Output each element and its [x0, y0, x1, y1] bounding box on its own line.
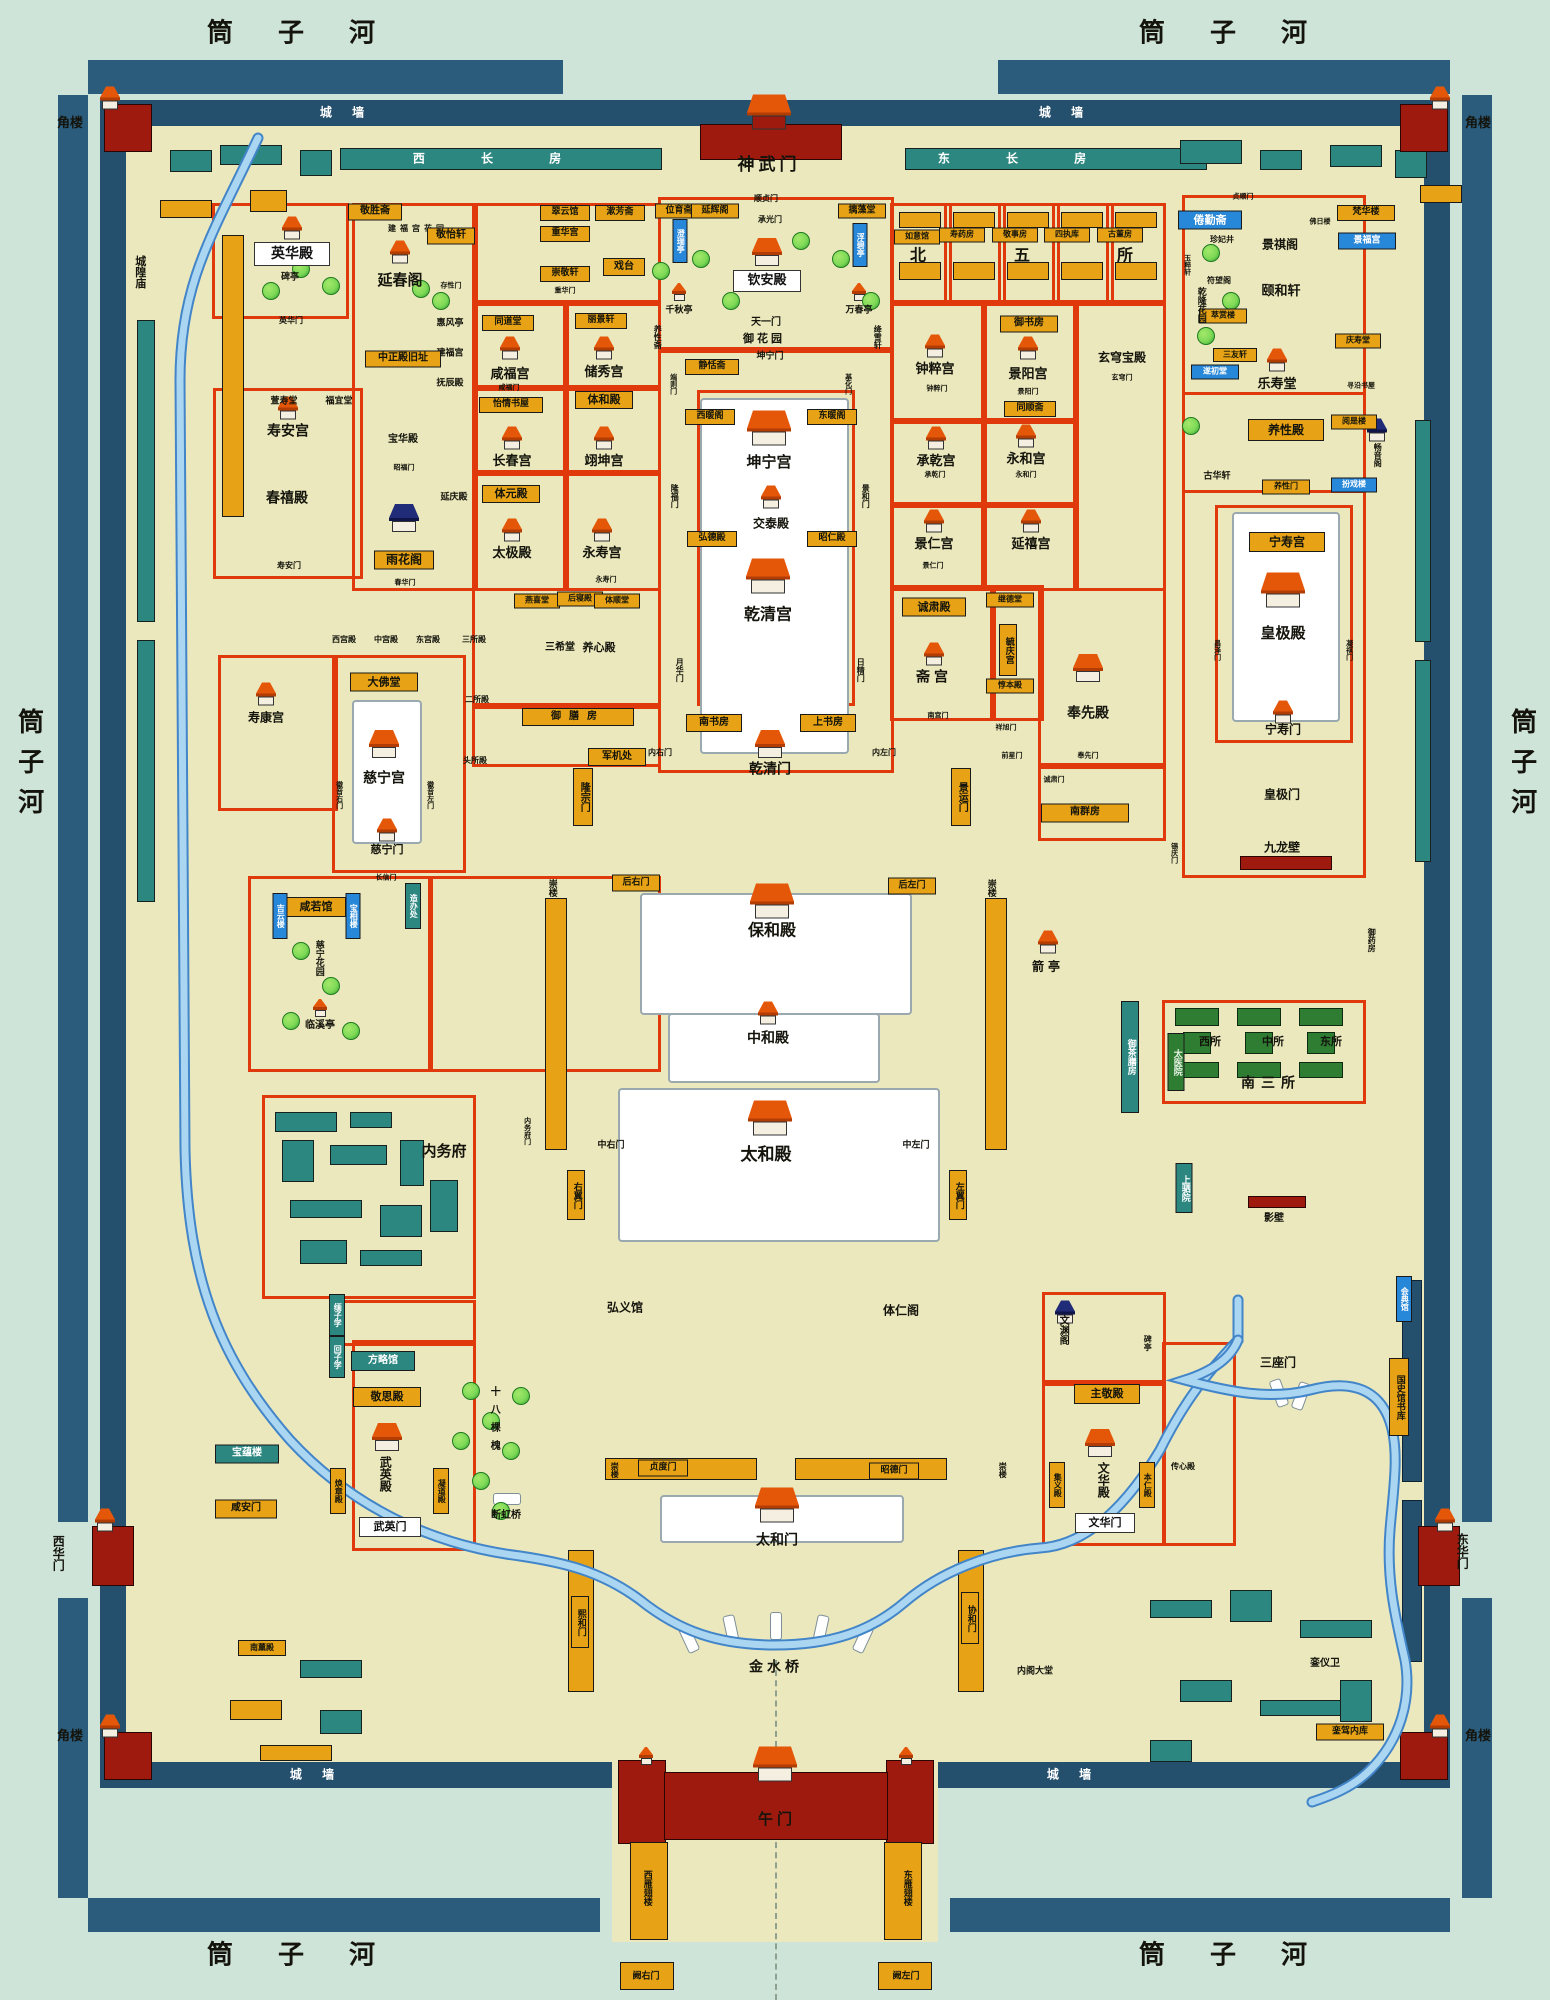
map-label: 东所 — [1320, 1036, 1342, 1048]
map-label: 福宜堂 — [325, 397, 352, 406]
map-label: 影壁 — [1264, 1214, 1284, 1225]
map-label: 咸福宫 — [490, 368, 529, 382]
map-label: 怡情书屋 — [479, 397, 543, 413]
map-label: 隆福门 — [670, 484, 678, 508]
map-label: 重华宫 — [540, 226, 590, 242]
map-label: 养性殿 — [1248, 419, 1324, 441]
map-label: 萱寿堂 — [270, 397, 297, 406]
map-label: 协和门 — [961, 1592, 979, 1644]
map-label: 方略馆 — [351, 1351, 415, 1371]
gate-xihuamen: 西华门 — [52, 1535, 65, 1571]
map-label: 午门 — [758, 1812, 796, 1828]
map-label: 体和殿 — [575, 391, 633, 409]
map-label: 养性门 — [1262, 480, 1310, 495]
map-label: 皇极殿 — [1260, 626, 1305, 642]
map-label: 西宫殿 — [332, 636, 356, 644]
map-label: 月华门 — [675, 658, 683, 682]
map-label: 熙和门 — [571, 1596, 589, 1648]
map-label: 崇楼 — [546, 879, 555, 897]
map-label: 珍妃井 — [1210, 236, 1234, 244]
map-label: 四执库 — [1044, 228, 1090, 243]
map-label: 端则门 — [669, 374, 676, 395]
map-label: 内左门 — [872, 749, 896, 757]
map-label: 翠云馆 — [540, 205, 590, 221]
map-label: 春禧殿 — [266, 492, 308, 507]
moat-label-top-right: 筒 子 河 — [1139, 20, 1325, 47]
wall-label-top-e: 城 墙 — [1039, 107, 1091, 120]
map-label: 锡庆门 — [1170, 843, 1177, 864]
map-label: 承乾宫 — [916, 455, 955, 469]
map-label: 寿安宫 — [267, 425, 309, 440]
map-label: 吉云楼 — [273, 893, 288, 939]
map-label: 临溪亭 — [305, 1021, 335, 1032]
map-label: 畅音阁 — [1373, 443, 1381, 467]
map-label: 昭福门 — [394, 464, 415, 471]
map-label: 抚辰殿 — [436, 379, 463, 388]
map-label: 中和殿 — [747, 1032, 789, 1047]
gate-shenwumen: 神武门 — [738, 157, 801, 175]
map-label: 军机处 — [588, 748, 646, 766]
map-label: 萃赏楼 — [1199, 309, 1247, 324]
map-label: 诚肃殿 — [902, 598, 966, 617]
map-label: 延禧宫 — [1011, 538, 1050, 552]
map-label: 佛日楼 — [1310, 218, 1331, 225]
map-label: 前星门 — [1002, 752, 1023, 759]
map-label: 后左门 — [888, 878, 936, 895]
map-label: 箭亭 — [1032, 961, 1064, 974]
map-label: 头所殿 — [463, 757, 487, 765]
map-label: 钟粹门 — [927, 385, 948, 392]
map-label: 南书房 — [686, 714, 742, 732]
map-label: 三座门 — [1260, 1357, 1296, 1370]
map-label: 景运门 — [951, 768, 971, 826]
map-label: 承光门 — [758, 216, 782, 224]
map-label: 景阳门 — [1018, 388, 1039, 395]
map-label: 惠风亭 — [436, 319, 463, 328]
map-label: 寿康宫 — [248, 712, 284, 725]
map-label: 东宫殿 — [416, 636, 440, 644]
map-label: 坤宁宫 — [746, 455, 791, 471]
map-label: 宁寿门 — [1265, 724, 1301, 737]
map-label: 焕章殿 — [330, 1468, 346, 1514]
map-label: 西暖阁 — [685, 409, 735, 425]
map-label: 春华门 — [395, 579, 416, 586]
map-label: 惇本殿 — [986, 679, 1034, 694]
map-label: 传心殿 — [1171, 1463, 1195, 1471]
map-label: 扮戏楼 — [1331, 478, 1377, 493]
map-label: 体仁阁 — [883, 1305, 919, 1318]
map-label: 东雁翅楼 — [901, 1870, 910, 1906]
map-label: 斋宫 — [916, 671, 952, 686]
map-label: 澄瑞亭 — [673, 219, 688, 263]
map-label: 英华门 — [279, 317, 303, 325]
map-label: 养心殿 — [583, 642, 616, 654]
map-label: 崇楼 — [998, 1462, 1006, 1478]
map-label: 英华殿 — [254, 242, 330, 266]
map-label: 体元殿 — [482, 485, 540, 503]
corner-tower-sw: 角楼 — [57, 1730, 83, 1744]
map-label: 万春亭 — [845, 306, 872, 315]
map-label: 断虹桥 — [491, 1511, 521, 1522]
map-label: 五 — [1014, 248, 1030, 265]
map-label: 右翼门 — [567, 1170, 585, 1220]
map-label: 景福宫 — [1338, 233, 1396, 250]
map-label: 御茶膳房 — [1121, 1001, 1139, 1113]
map-label: 太和门 — [756, 1534, 798, 1549]
map-label: 太和殿 — [741, 1147, 792, 1165]
map-label: 摛藻堂 — [838, 204, 886, 219]
map-label: 乐寿堂 — [1257, 378, 1296, 392]
map-label: 景阳宫 — [1008, 368, 1047, 382]
map-label: 集义殿 — [1049, 1462, 1065, 1508]
corner-tower-se: 角楼 — [1465, 1730, 1491, 1744]
map-label: 符望阁 — [1207, 277, 1231, 285]
map-label: 延庆殿 — [440, 493, 467, 502]
map-label: 慈宁花园 — [313, 940, 322, 976]
map-label: 奉先殿 — [1067, 707, 1109, 722]
map-label: 中宫殿 — [374, 636, 398, 644]
map-label: 中所 — [1262, 1036, 1284, 1048]
map-label: 千秋亭 — [665, 306, 692, 315]
map-label: 崇楼 — [985, 879, 994, 897]
map-label: 贞度门 — [638, 1460, 688, 1477]
map-label: 延春阁 — [377, 273, 422, 289]
map-label: 景祺阁 — [1262, 239, 1298, 252]
map-label: 永和门 — [1016, 471, 1037, 478]
changfang-east: 东 长 房 — [938, 153, 1112, 166]
map-label: 左翼门 — [949, 1170, 967, 1220]
map-label: 咸安门 — [215, 1500, 277, 1519]
map-label: 碑亭 — [1143, 1335, 1151, 1351]
map-label: 漱芳斋 — [595, 205, 645, 221]
map-label: 慈宁宫 — [363, 772, 405, 787]
map-label: 敬胜斋 — [348, 204, 402, 221]
map-label: 宝华殿 — [388, 435, 418, 446]
map-label: 永和宫 — [1006, 453, 1045, 467]
map-label: 阙左门 — [892, 1972, 919, 1981]
map-label: 二所殿 — [465, 696, 489, 704]
map-label: 徽音右门 — [335, 781, 342, 809]
map-label: 南宫门 — [928, 712, 949, 719]
map-label: 奉先门 — [1078, 752, 1099, 759]
map-label: 养性斋 — [653, 325, 661, 349]
map-label: 回子学 — [329, 1336, 345, 1378]
map-label: 戏台 — [603, 258, 645, 276]
map-label: 文华门 — [1075, 1513, 1135, 1533]
map-label: 金水桥 — [749, 1661, 803, 1676]
map-label: 御膳房 — [522, 708, 634, 726]
map-label: 所 — [1117, 248, 1133, 265]
map-label: 三所殿 — [462, 636, 486, 644]
map-label: 玉粹轩 — [1183, 255, 1190, 276]
map-label: 遂初堂 — [1191, 365, 1239, 380]
map-label: 重华门 — [555, 287, 576, 294]
map-label: 中左门 — [902, 1141, 929, 1150]
map-label: 内务府 — [421, 1144, 466, 1160]
map-label: 体顺堂 — [594, 594, 640, 609]
inner-golden-water-river — [0, 0, 1550, 2000]
map-label: 皇极门 — [1264, 789, 1300, 802]
map-label: 后右门 — [612, 875, 660, 892]
map-label: 日精门 — [856, 658, 864, 682]
map-label: 中右门 — [597, 1141, 624, 1150]
map-label: 昭仁殿 — [807, 531, 857, 547]
map-label: 碑亭 — [281, 273, 299, 282]
map-label: 造办处 — [405, 883, 421, 929]
map-label: 西所 — [1199, 1036, 1221, 1048]
map-label: 毓庆宫 — [999, 624, 1017, 676]
map-label: 乾清宫 — [744, 607, 792, 624]
map-label: 颐和轩 — [1261, 285, 1300, 299]
map-label: 本仁殿 — [1139, 1462, 1155, 1508]
map-label: 慈宁门 — [371, 844, 404, 856]
map-label: 昭德门 — [869, 1463, 919, 1480]
map-label: 长信门 — [376, 874, 397, 881]
map-label: 缅子学 — [329, 1294, 345, 1336]
map-label: 銮仪卫 — [1310, 1659, 1340, 1670]
map-label: 乾清门 — [749, 763, 791, 778]
map-label: 国史馆书库 — [1389, 1358, 1409, 1436]
map-label: 长春宫 — [492, 455, 531, 469]
map-label: 西雁翅楼 — [641, 1870, 650, 1906]
moat-label-right: 筒子河 — [1507, 708, 1534, 828]
map-label: 浮碧亭 — [853, 223, 868, 267]
map-label: 弘义馆 — [607, 1302, 643, 1315]
map-label: 丽景轩 — [575, 313, 627, 329]
map-label: 徽音左门 — [426, 781, 433, 809]
map-label: 寻沿书屋 — [1347, 382, 1375, 389]
map-label: 南薰殿 — [238, 1640, 286, 1656]
map-label: 永寿宫 — [582, 547, 621, 561]
map-label: 古华轩 — [1203, 472, 1230, 481]
map-label: 交泰殿 — [753, 518, 789, 531]
map-label: 宝蕴楼 — [215, 1445, 279, 1464]
map-label: 敬怡轩 — [427, 228, 475, 245]
map-label: 保和殿 — [748, 923, 796, 940]
moat-label-left: 筒子河 — [14, 708, 41, 828]
moat-label-bottom-right: 筒 子 河 — [1139, 1942, 1325, 1969]
map-label: 倦勤斋 — [1178, 211, 1242, 230]
map-label: 主敬殿 — [1074, 1384, 1140, 1404]
map-label: 南群房 — [1041, 804, 1129, 823]
map-label: 凝祺门 — [1345, 640, 1352, 661]
map-label: 如意馆 — [894, 230, 940, 245]
map-label: 雨花阁 — [374, 551, 434, 570]
map-label: 景和门 — [861, 484, 869, 508]
map-label: 诚肃门 — [1044, 776, 1065, 783]
map-label: 东暖阁 — [807, 409, 857, 425]
moat-label-top-left: 筒 子 河 — [207, 20, 393, 47]
map-label: 北 — [910, 248, 926, 265]
map-label: 永寿门 — [596, 576, 617, 583]
map-label: 寿药房 — [939, 228, 985, 243]
gate-donghuamen: 东华门 — [1456, 1533, 1469, 1569]
map-label: 翊坤宫 — [584, 455, 623, 469]
map-label: 玄穹门 — [1112, 374, 1133, 381]
map-label: 中正殿旧址 — [365, 351, 441, 368]
map-label: 上驷院 — [1176, 1163, 1193, 1213]
map-label: 弘德殿 — [687, 531, 737, 547]
map-label: 太极殿 — [492, 547, 531, 561]
map-label: 御书房 — [1000, 316, 1058, 333]
map-label: 钦安殿 — [733, 270, 801, 292]
map-label: 梵华楼 — [1337, 205, 1395, 221]
map-label: 存性门 — [441, 282, 462, 289]
map-label: 武英门 — [359, 1517, 421, 1537]
corner-tower-ne: 角楼 — [1465, 117, 1491, 131]
map-label: 古董房 — [1097, 228, 1143, 243]
map-label: 承乾门 — [925, 471, 946, 478]
map-label: 大佛堂 — [350, 673, 418, 692]
map-label: 銮驾内库 — [1316, 1724, 1384, 1741]
corner-tower-nw: 角楼 — [57, 117, 83, 131]
map-label: 阅是楼 — [1331, 415, 1377, 430]
wall-label-bottom-w: 城 墙 — [290, 1769, 342, 1782]
map-label: 顺贞门 — [754, 195, 778, 203]
map-label: 燕喜堂 — [514, 594, 560, 609]
map-label: 景仁门 — [923, 562, 944, 569]
map-label: 同道堂 — [482, 315, 534, 331]
map-label: 内右门 — [648, 749, 672, 757]
map-label: 会典馆 — [1396, 1276, 1412, 1322]
map-label: 崇敬轩 — [540, 266, 590, 282]
map-label: 寿安门 — [277, 562, 301, 570]
map-label: 御药房 — [1367, 928, 1375, 952]
moat-label-bottom-left: 筒 子 河 — [207, 1942, 393, 1969]
map-label: 继德堂 — [986, 593, 1034, 608]
map-label: 文华殿 — [1097, 1462, 1110, 1498]
map-label: 咸福门 — [499, 384, 520, 391]
map-label: 同顺斋 — [1004, 401, 1056, 417]
map-label: 坤宁门 — [756, 352, 783, 361]
map-label: 宝相楼 — [346, 893, 361, 939]
map-label: 储秀宫 — [584, 366, 623, 380]
map-label: 九龙壁 — [1264, 842, 1300, 855]
map-label: 敬思殿 — [353, 1387, 421, 1407]
map-label: 祥旭门 — [996, 724, 1017, 731]
map-label: 宁寿宫 — [1249, 532, 1325, 552]
map-label: 文渊阁 — [1057, 1315, 1068, 1345]
map-label: 三友轩 — [1213, 348, 1257, 362]
wall-label-bottom-e: 城 墙 — [1047, 1769, 1099, 1782]
map-label: 玄穹宝殿 — [1098, 352, 1146, 365]
map-label: 庆寿堂 — [1335, 334, 1381, 349]
changfang-west: 西 长 房 — [413, 153, 587, 166]
map-label: 阙右门 — [632, 1972, 659, 1981]
map-label: 昌泽门 — [1213, 640, 1220, 661]
map-label: 崇楼 — [610, 1462, 618, 1478]
map-label: 南三所 — [1241, 1077, 1301, 1092]
map-label: 敬事房 — [992, 228, 1038, 243]
map-label: 内务府门 — [523, 1117, 530, 1145]
wall-label-top-w: 城 墙 — [320, 107, 372, 120]
map-label: 基化门 — [844, 374, 851, 395]
forbidden-city-map: 筒 子 河筒 子 河筒 子 河筒 子 河筒子河筒子河城 墙城 墙城 墙城 墙角楼… — [0, 0, 1550, 2000]
map-label: 三希堂 — [545, 643, 575, 654]
map-label: 乾隆花园 — [1195, 287, 1204, 323]
map-label: 太医院 — [1168, 1033, 1185, 1091]
map-label: 景仁宫 — [914, 538, 953, 552]
map-label: 隆宗门 — [573, 768, 593, 826]
map-label: 御花园 — [743, 333, 785, 345]
map-label: 凝道殿 — [433, 1468, 449, 1514]
map-label: 贞顺门 — [1233, 193, 1254, 200]
map-label: 上书房 — [800, 714, 856, 732]
map-label: 城隍庙 — [134, 256, 146, 289]
map-label: 静恬斋 — [685, 359, 739, 375]
map-label: 天一门 — [751, 318, 781, 329]
map-label: 武英殿 — [379, 1456, 392, 1492]
map-label: 十八棵槐 — [488, 1386, 499, 1458]
map-label: 咸若馆 — [286, 897, 346, 917]
map-label: 延辉阁 — [691, 204, 739, 219]
map-label: 钟粹宫 — [915, 363, 954, 377]
map-label: 内阁大堂 — [1017, 1667, 1053, 1676]
map-label: 绛雪轩 — [873, 325, 881, 349]
